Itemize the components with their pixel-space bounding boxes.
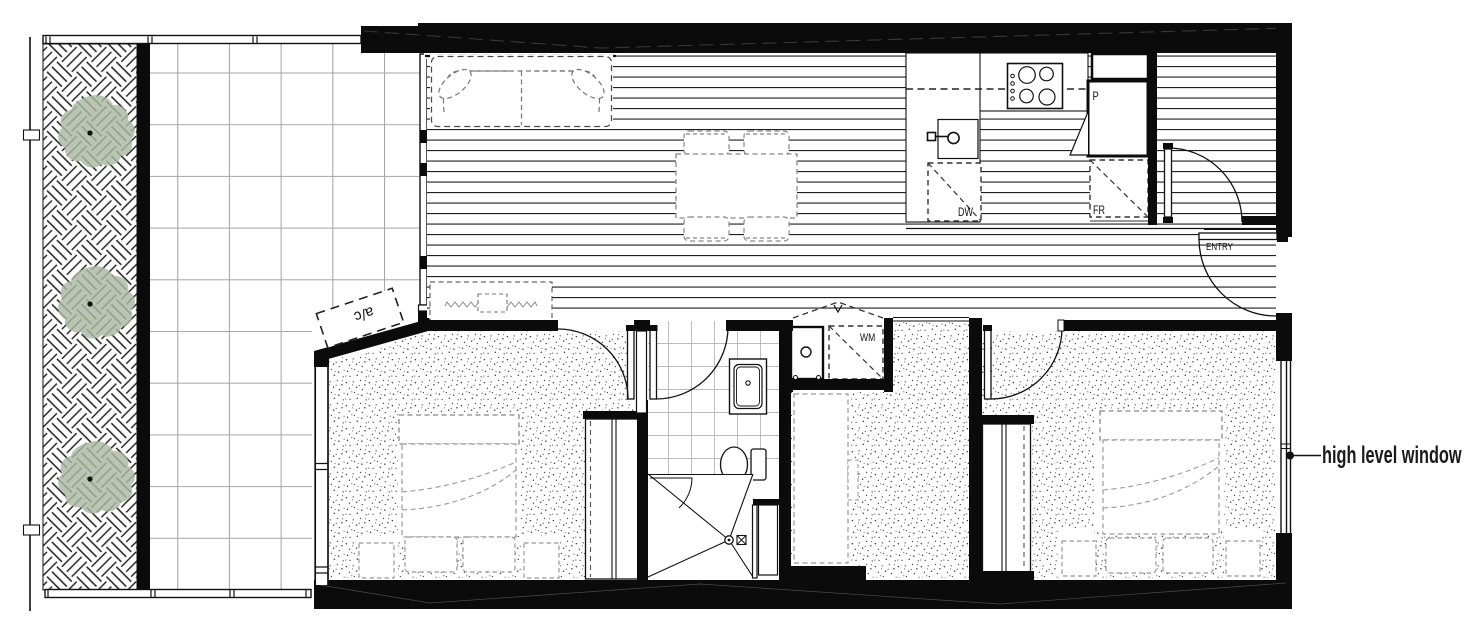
svg-text:high level window: high level window [1322,442,1462,469]
svg-text:WM: WM [860,332,875,344]
svg-text:ENTRY: ENTRY [1206,241,1233,252]
svg-text:DW: DW [958,207,973,219]
svg-text:FR: FR [1093,205,1105,217]
svg-text:P: P [1093,90,1099,103]
